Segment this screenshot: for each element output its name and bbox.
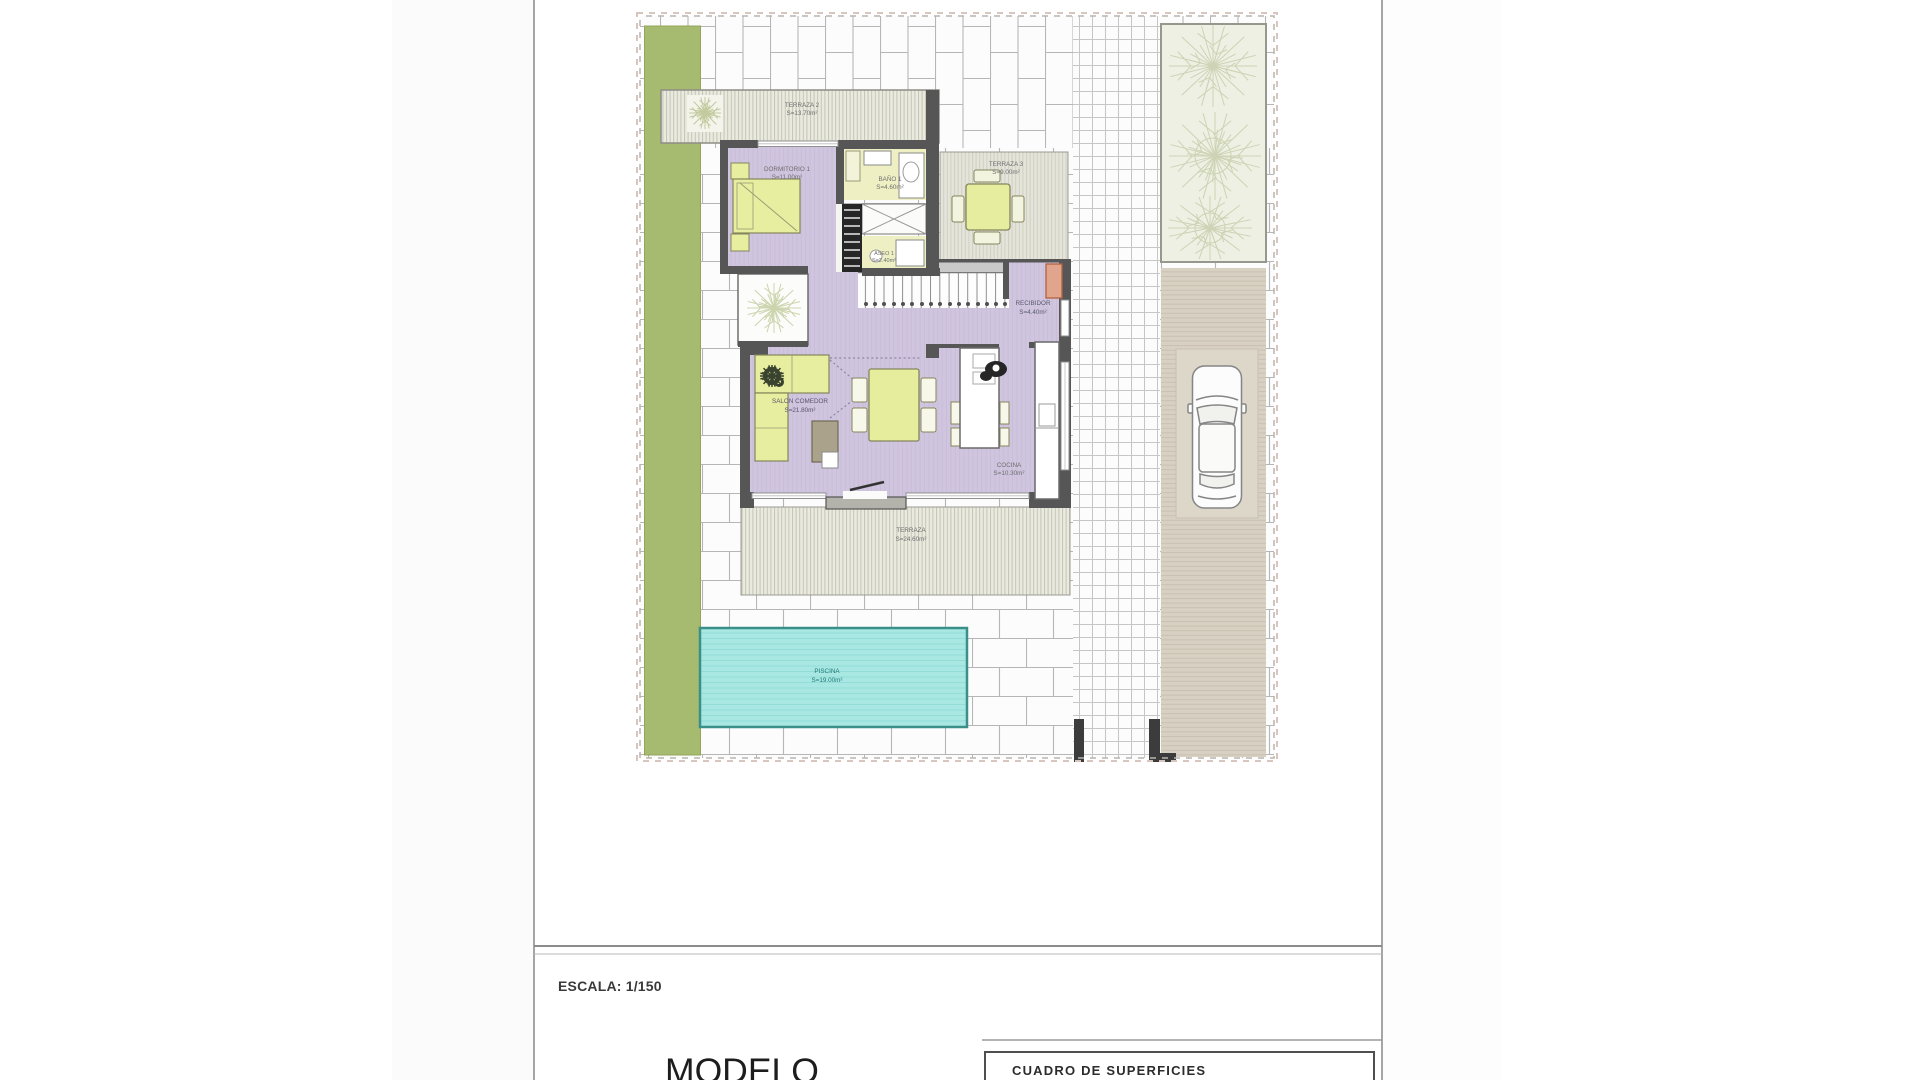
- svg-text:MODELO: MODELO: [665, 1051, 819, 1080]
- svg-text:CUADRO DE SUPERFICIES: CUADRO DE SUPERFICIES: [1012, 1063, 1206, 1078]
- svg-text:ASEO 1: ASEO 1: [874, 251, 894, 257]
- svg-text:DORMITORIO 1: DORMITORIO 1: [764, 166, 811, 173]
- svg-text:RECIBIDOR: RECIBIDOR: [1016, 300, 1051, 307]
- svg-text:TERRAZA: TERRAZA: [896, 527, 926, 534]
- svg-text:S=9.00m²: S=9.00m²: [992, 169, 1019, 176]
- svg-text:S=24.60m²: S=24.60m²: [896, 536, 927, 543]
- svg-text:S=21.80m²: S=21.80m²: [785, 407, 816, 414]
- svg-text:S=2.40m²: S=2.40m²: [872, 258, 896, 264]
- svg-text:S=13.70m²: S=13.70m²: [787, 110, 818, 117]
- svg-text:S=4.60m²: S=4.60m²: [876, 184, 903, 191]
- svg-text:COCINA: COCINA: [997, 462, 1022, 469]
- svg-text:BAÑO 1: BAÑO 1: [878, 174, 902, 183]
- svg-text:ESCALA: 1/150: ESCALA: 1/150: [558, 978, 662, 994]
- svg-text:PISCINA: PISCINA: [814, 668, 840, 675]
- svg-text:TERRAZA 3: TERRAZA 3: [989, 161, 1024, 168]
- svg-text:TERRAZA 2: TERRAZA 2: [785, 102, 820, 109]
- svg-text:S=11.00m²: S=11.00m²: [772, 174, 803, 181]
- svg-text:S=4.40m²: S=4.40m²: [1019, 309, 1046, 316]
- svg-text:S=19.00m²: S=19.00m²: [812, 677, 843, 684]
- svg-text:S=10.30m²: S=10.30m²: [994, 470, 1025, 477]
- svg-text:SALON COMEDOR: SALON COMEDOR: [772, 398, 828, 405]
